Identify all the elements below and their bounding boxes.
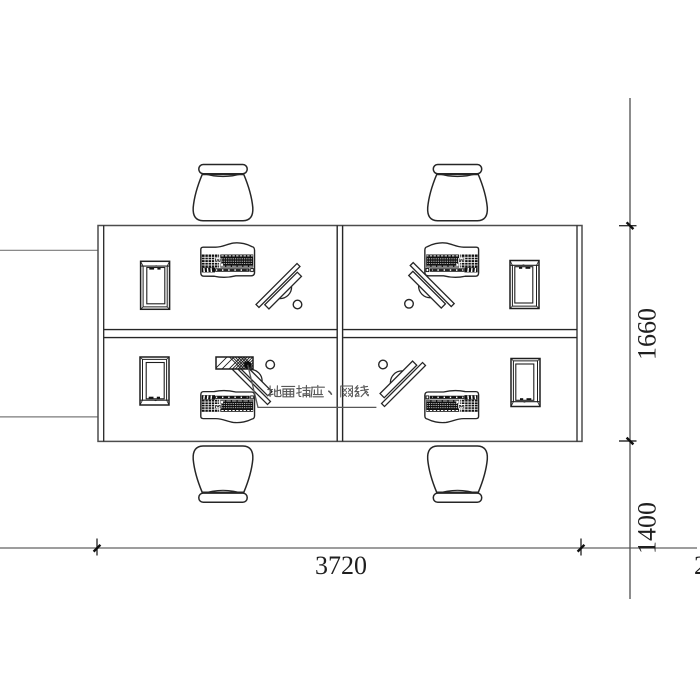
svg-text:2: 2: [694, 551, 700, 580]
svg-text:1400: 1400: [633, 502, 662, 554]
svg-text:1660: 1660: [633, 308, 662, 360]
svg-text:3720: 3720: [315, 551, 367, 580]
